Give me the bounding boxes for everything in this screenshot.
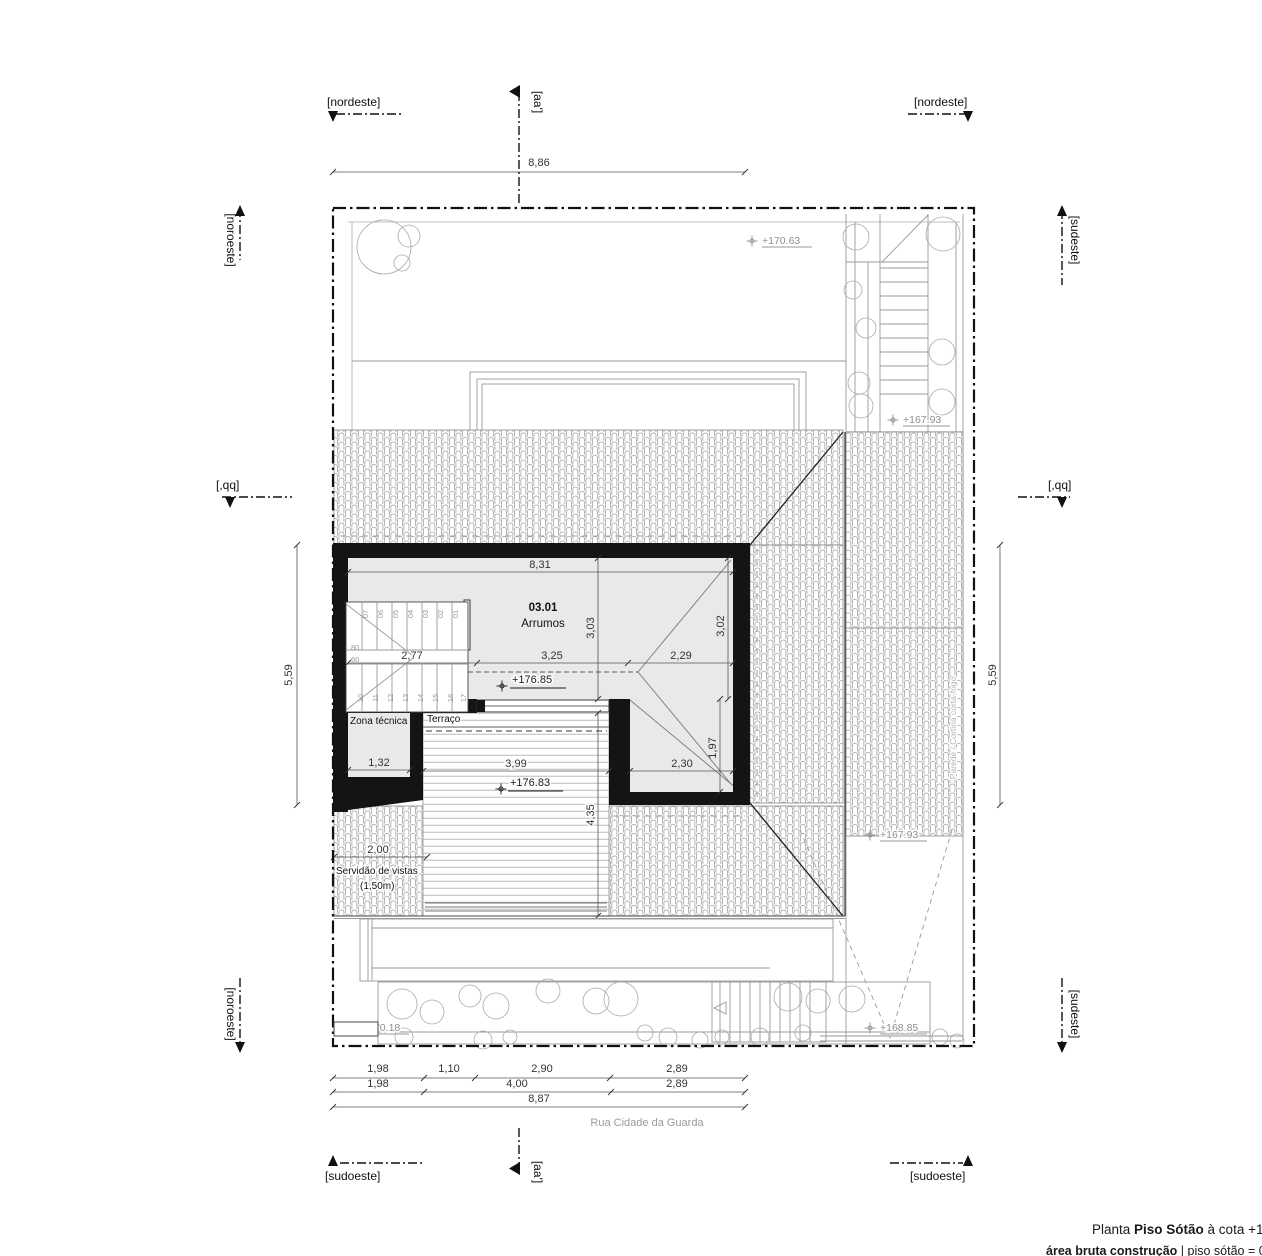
svg-text:1,98: 1,98 bbox=[367, 1078, 388, 1090]
svg-text:2,77: 2,77 bbox=[401, 650, 422, 662]
svg-text:2,89: 2,89 bbox=[666, 1078, 687, 1090]
svg-text:8,87: 8,87 bbox=[528, 1093, 549, 1105]
svg-text:02: 02 bbox=[436, 610, 445, 618]
svg-text:17: 17 bbox=[459, 694, 468, 702]
svg-text:10: 10 bbox=[356, 694, 365, 702]
svg-text:15: 15 bbox=[431, 694, 440, 702]
svg-text:03: 03 bbox=[421, 610, 430, 618]
svg-text:2,89: 2,89 bbox=[666, 1063, 687, 1075]
svg-text:2,90: 2,90 bbox=[531, 1063, 552, 1075]
level-drive-upper: +167.93 bbox=[880, 829, 918, 841]
marker-nordeste-right: [nordeste] bbox=[914, 95, 967, 109]
svg-text:1,97: 1,97 bbox=[707, 737, 719, 758]
svg-text:5,59: 5,59 bbox=[987, 664, 999, 685]
svg-text:11: 11 bbox=[371, 694, 380, 702]
svg-text:1,98: 1,98 bbox=[367, 1063, 388, 1075]
svg-text:8,31: 8,31 bbox=[529, 559, 550, 571]
marker-qq-right: [,qq] bbox=[1048, 478, 1071, 492]
svg-text:13: 13 bbox=[401, 694, 410, 702]
marker-sudoeste-left: [sudoeste] bbox=[325, 1169, 380, 1183]
svg-text:07: 07 bbox=[361, 610, 370, 618]
svg-text:2,29: 2,29 bbox=[670, 650, 691, 662]
svg-text:06: 06 bbox=[376, 610, 385, 618]
svg-text:80: 80 bbox=[351, 643, 359, 652]
drawing-title: Planta Piso Sótão à cota +17 bbox=[1092, 1222, 1262, 1237]
floor-plan-page: Parede / Cortina corta-fogo Terraço bbox=[0, 0, 1262, 1256]
svg-text:8,86: 8,86 bbox=[528, 157, 549, 169]
firewall-label: Parede / Cortina corta-fogo bbox=[948, 676, 958, 779]
svg-text:14: 14 bbox=[416, 694, 425, 702]
svg-text:2,00: 2,00 bbox=[367, 844, 388, 856]
svg-text:3,03: 3,03 bbox=[585, 617, 597, 638]
level-top-yard: +170.63 bbox=[762, 235, 800, 247]
level-attic: +176.85 bbox=[512, 674, 552, 686]
marker-sudeste-bottom: [sudeste] bbox=[1068, 990, 1082, 1039]
marker-section-aa-top: [aa'] bbox=[531, 91, 545, 113]
svg-text:4,00: 4,00 bbox=[506, 1078, 527, 1090]
marker-nordeste-left: [nordeste] bbox=[327, 95, 380, 109]
svg-text:16: 16 bbox=[446, 694, 455, 702]
svg-text:2,30: 2,30 bbox=[671, 758, 692, 770]
tech-room-label: Zona técnica bbox=[350, 716, 408, 727]
svg-text:12: 12 bbox=[386, 694, 395, 702]
svg-text:05: 05 bbox=[391, 610, 400, 618]
svg-text:1,10: 1,10 bbox=[438, 1063, 459, 1075]
marker-sudoeste-right: [sudoeste] bbox=[910, 1169, 965, 1183]
marker-noroeste-bottom: [noroeste] bbox=[224, 987, 238, 1040]
svg-text:04: 04 bbox=[406, 610, 415, 618]
marker-qq-left: [,qq] bbox=[216, 478, 239, 492]
level-drive-lower: +168.85 bbox=[880, 1022, 918, 1034]
svg-text:1,32: 1,32 bbox=[368, 757, 389, 769]
marker-noroeste-top: [noroeste] bbox=[224, 213, 238, 266]
marker-section-aa-bottom: [aa'] bbox=[531, 1161, 545, 1183]
easement-label-2: (1,50m) bbox=[360, 881, 394, 892]
terrace-label: Terraço bbox=[427, 714, 461, 725]
street-name: Rua Cidade da Guarda bbox=[590, 1117, 704, 1129]
terrace-area: Terraço bbox=[423, 705, 609, 916]
drawing-subtitle: área bruta construção | piso sótão = 03 bbox=[1046, 1244, 1262, 1256]
easement-label-1: Servidão de vistas bbox=[336, 866, 418, 877]
svg-text:4,35: 4,35 bbox=[585, 804, 597, 825]
svg-text:3,02: 3,02 bbox=[715, 615, 727, 636]
svg-text:3,99: 3,99 bbox=[505, 758, 526, 770]
floor-plan-drawing: Parede / Cortina corta-fogo Terraço bbox=[0, 0, 1262, 1256]
level-terrace: +176.83 bbox=[510, 777, 550, 789]
svg-text:3,25: 3,25 bbox=[541, 650, 562, 662]
svg-text:01: 01 bbox=[451, 610, 460, 618]
room-number: 03.01 bbox=[529, 602, 558, 614]
marker-sudeste-top: [sudeste] bbox=[1068, 216, 1082, 265]
level-court-upper: +167.93 bbox=[903, 414, 941, 426]
svg-text:5,59: 5,59 bbox=[283, 664, 295, 685]
room-name: Arrumos bbox=[521, 618, 565, 630]
